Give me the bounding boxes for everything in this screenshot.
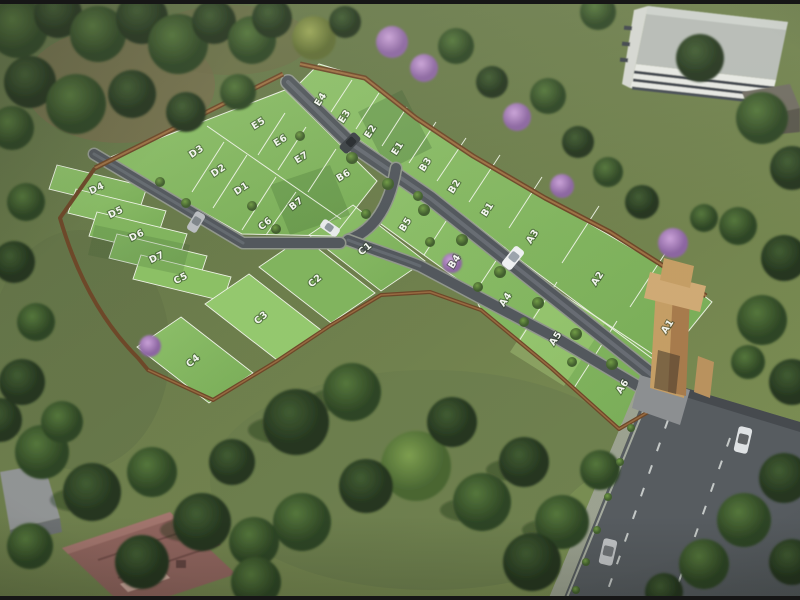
jacaranda-tree bbox=[139, 335, 161, 357]
site-plan-render: E4 E3 E2 E1 B3 B2 B1 A3 A2 A1 B5 B4 A4 A… bbox=[0, 0, 800, 600]
letterbox-bar-top bbox=[0, 0, 800, 4]
letterbox-bar-bottom bbox=[0, 596, 800, 600]
aerial-site-render: E4 E3 E2 E1 B3 B2 B1 A3 A2 A1 B5 B4 A4 A… bbox=[0, 0, 800, 600]
